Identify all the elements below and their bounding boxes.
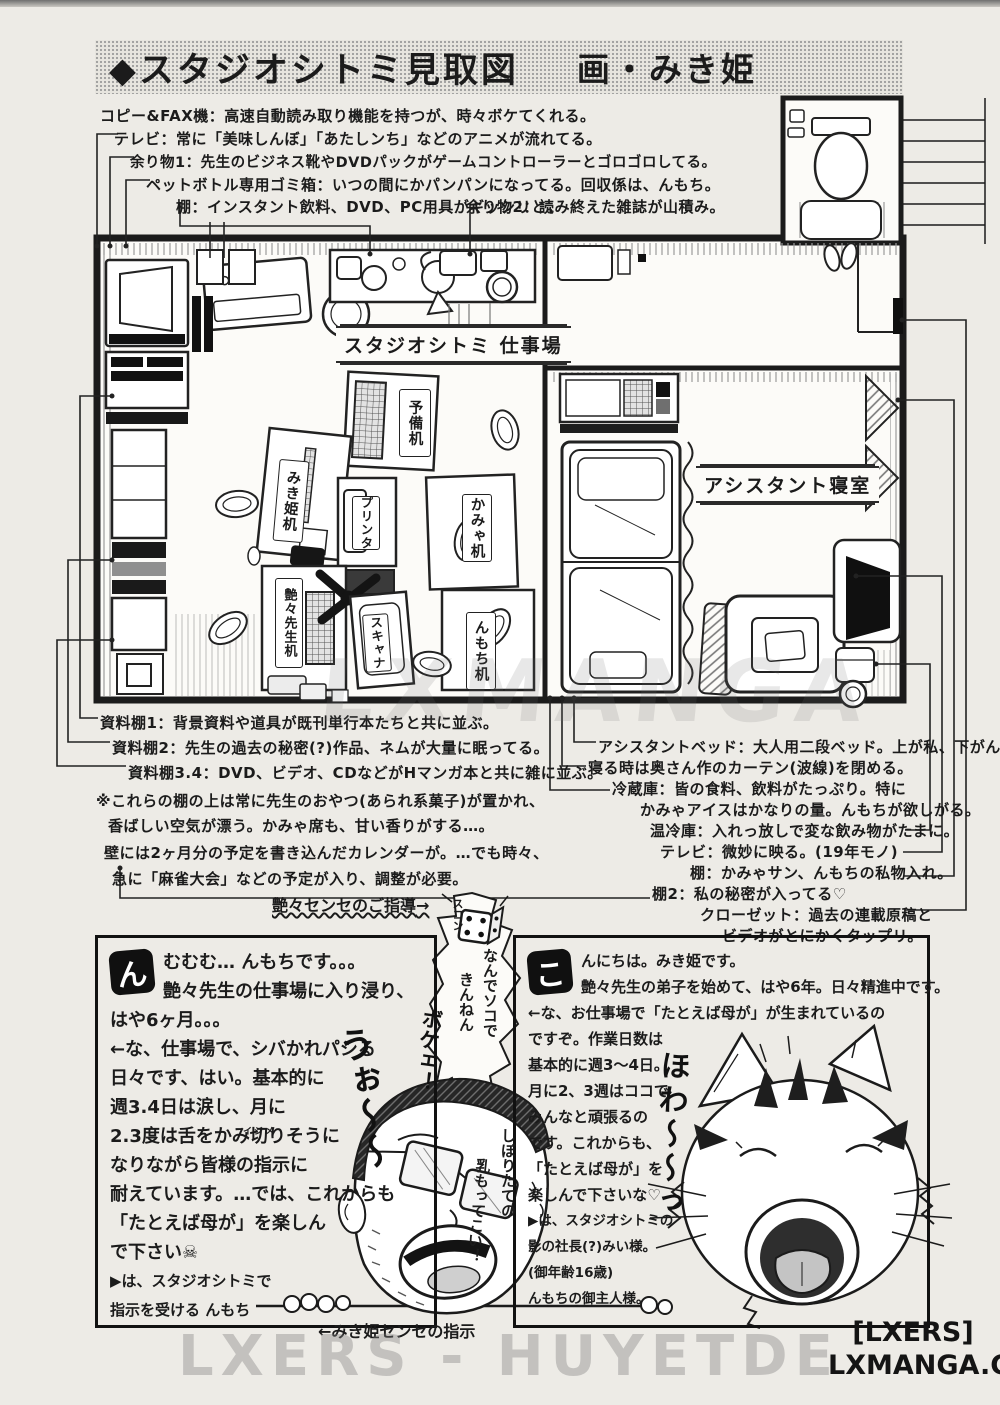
title-banner: ◆スタジオシトミ見取図 画・みき姫 xyxy=(95,40,903,94)
page-author: 画・みき姫 xyxy=(577,43,757,91)
note-leftover2: 余り物2：読み終えた雑誌が山積み。 xyxy=(466,196,725,217)
desk-label-yobi: 予備机 xyxy=(399,389,431,457)
page-title: ◆スタジオシトミ見取図 xyxy=(109,42,519,93)
note-bed2: 寝る時は奥さん作のカーテン(波線)を閉める。 xyxy=(588,757,913,778)
note-bedroom-tv: テレビ：微妙に映る。(19年モノ) xyxy=(660,841,898,862)
panel-footnote: 影の社長(?)みい様。 xyxy=(528,1234,915,1260)
panel-line: むむむ… んもちです。。。 xyxy=(110,948,422,977)
workroom-label: スタジオシトミ 仕事場 xyxy=(336,326,571,363)
workroom-tv-and-rack xyxy=(106,260,188,424)
panel-line: 「たとえば母が」を楽しん xyxy=(110,1209,422,1238)
guidance-text: 艶々センセのご指導 xyxy=(272,896,416,915)
panel-line: 月に2、3週はココで xyxy=(528,1078,915,1104)
panel-line: みんなと頑張るの xyxy=(528,1104,915,1130)
note-closet1: クローゼット：過去の連載原稿と xyxy=(700,904,933,925)
panel-footnote: ▶は、スタジオシトミの xyxy=(528,1208,915,1234)
desk-label-kamya: かみゃ机 xyxy=(462,494,492,562)
note-calendar1: 壁には2ヶ月分の予定を書き込んだカレンダーが。…でも時々、 xyxy=(104,842,549,863)
panel-line: 耐えています。…では、これからも xyxy=(110,1180,422,1209)
guidance-arrow-icon: → xyxy=(416,896,429,915)
watermark-mid: LXMANGA xyxy=(315,642,878,742)
note-calendar2: 急に「麻雀大会」などの予定が入り、調整が必要。 xyxy=(112,868,468,889)
note-onreiko: 温冷庫：入れっ放しで変な飲み物がたまに。 xyxy=(650,820,959,841)
desk-label-printer: プリンタ xyxy=(352,496,380,550)
right-panel-dropcap: こ xyxy=(526,948,574,996)
bubble-sfx: スコン xyxy=(449,898,465,931)
note-bedroom-shelf: 棚：かみゃサン、んもちの私物入れ。 xyxy=(690,862,953,883)
watermark-bottom: LXERS - HUYETDE xyxy=(178,1324,840,1389)
panel-line: 基本的に週3〜4日。 xyxy=(528,1052,915,1078)
bedroom-shelf xyxy=(560,374,678,433)
panel-footnote: んもちの御主人様。 xyxy=(528,1286,915,1312)
note-bedroom-shelf2: 棚2：私の秘密が入ってる♡ xyxy=(652,883,847,904)
watermark-tag-line1: [LXERS] xyxy=(828,1316,998,1349)
note-tv: テレビ：常に「美味しんぼ」「あたしンち」などのアニメが流れてる。 xyxy=(114,128,602,149)
note-snacks1: ※これらの棚の上は常に先生のおやつ(あられ系菓子)が置かれ、 xyxy=(96,790,544,811)
left-panel-dropcap: ん xyxy=(108,948,156,996)
panel-line: ←な、お仕事場で「たとえば母が」が生まれているの xyxy=(528,1000,915,1026)
note-fridge1: 冷蔵庫：皆の食料、飲料がたっぷり。特に xyxy=(612,778,906,799)
bedroom-label: アシスタント寝室 xyxy=(696,466,879,503)
left-wall-shelves xyxy=(112,430,166,694)
note-copier: コピー&FAX機：高速自動読み取り機能を持つが、時々ボケてくれる。 xyxy=(100,105,596,126)
note-snacks2: 香ばしい空気が漂う。かみゃ席も、甘い香りがする…。 xyxy=(108,815,494,836)
panel-line: 艶々先生の弟子を始めて、はや6年。日々精進中です。 xyxy=(528,974,915,1000)
panel-line: ですぞ。作業日数は xyxy=(528,1026,915,1052)
desk-label-sensei: 艶々先生机 xyxy=(275,578,303,668)
panel-line: 「たとえば母が」を xyxy=(528,1156,915,1182)
note-trashbox: ペットボトル専用ゴミ箱：いつの間にかパンパンになってる。回収係は、んもち。 xyxy=(146,174,720,195)
watermark-tag: [LXERS] LXMANGA.COM xyxy=(828,1316,998,1382)
note-fridge2: かみゃアイスはかなりの量。んもちが欲しがる。 xyxy=(640,799,981,820)
bubble-line2: きんねん xyxy=(456,972,477,1032)
right-comic-panel: こ んにちは。みき姫です。 艶々先生の弟子を始めて、はや6年。日々精進中です。 … xyxy=(513,935,930,1328)
furigana-ijime: イジメ xyxy=(243,1124,276,1137)
panel-footnote: ▶は、スタジオシトミで xyxy=(110,1267,422,1296)
panel-line: 艶々先生の仕事場に入り浸り、 xyxy=(110,977,422,1006)
note-shelf34: 資料棚3.4：DVD、ビデオ、CDなどがHマンガ本と共に雑に並ぶ。 xyxy=(128,762,603,783)
panel-line: です。これからも、 xyxy=(528,1130,915,1156)
guidance-label: 艶々センセのご指導→ xyxy=(272,892,429,916)
sfx-howa: ほわ〜〜っ xyxy=(642,1049,695,1221)
note-leftover1: 余り物1：先生のビジネス靴やDVDパックがゲームコントローラーとゴロゴロしてる。 xyxy=(130,151,717,172)
panel-line: 楽しんで下さいな♡ xyxy=(528,1182,915,1208)
watermark-tag-line2: LXMANGA.COM xyxy=(828,1349,998,1382)
panel-line: んにちは。みき姫です。 xyxy=(528,948,915,974)
bubble-line1: なんでソコで xyxy=(480,948,501,1038)
milk-text-1: しぼりたての xyxy=(498,1128,519,1218)
panel-footnote: (御年齢16歳) xyxy=(528,1260,915,1286)
manga-page: ◆スタジオシトミ見取図 画・みき姫 コピー&FAX機：高速自動読み取り機能を持つ… xyxy=(0,0,1000,1405)
panel-line: で下さい☠ xyxy=(110,1238,422,1267)
